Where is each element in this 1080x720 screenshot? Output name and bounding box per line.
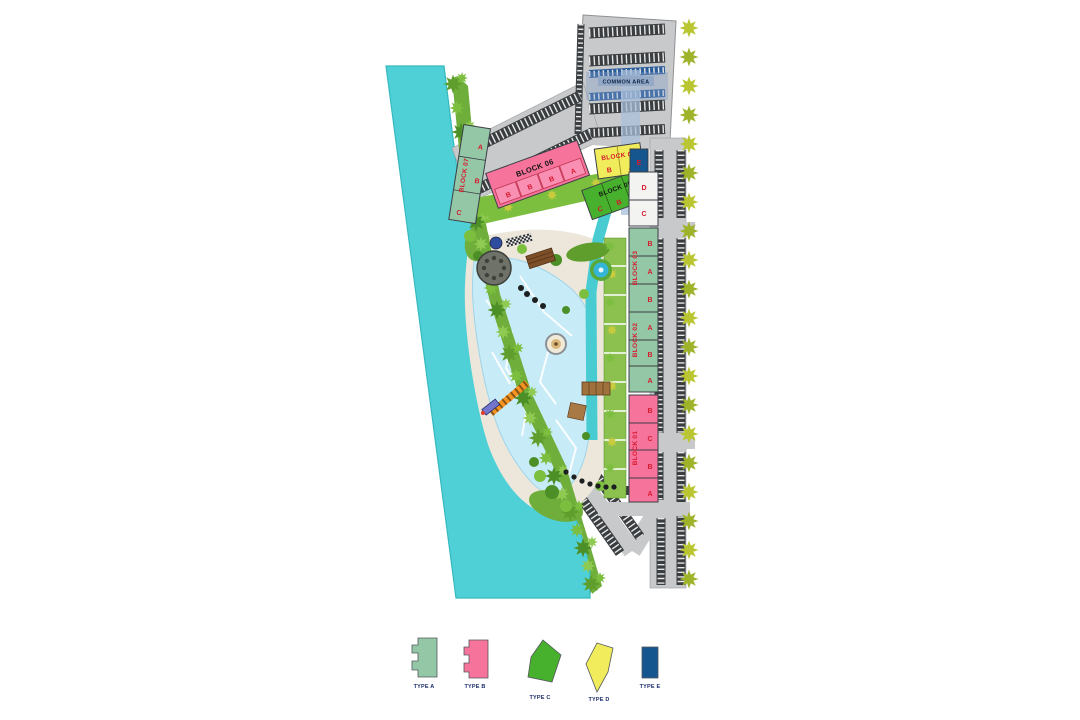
tree-icon	[607, 325, 618, 336]
block-02-label: BLOCK 02	[632, 323, 639, 358]
tree-icon	[547, 190, 558, 201]
legend-label-type-e: TYPE E	[640, 684, 661, 690]
unit-label: B	[474, 178, 480, 186]
lounger-icon	[571, 474, 576, 479]
tree-icon	[680, 106, 699, 125]
unit-label: B	[647, 297, 652, 304]
rock-dot	[482, 266, 486, 270]
round-pool-center	[599, 268, 604, 273]
tree-icon	[680, 396, 699, 415]
kids-pool-icon	[490, 237, 502, 249]
stepping-stone-icon	[524, 291, 530, 297]
common-area-label: COMMON AREA	[603, 80, 650, 86]
tree-icon	[541, 426, 553, 438]
tree-icon	[573, 500, 585, 512]
unit-label: B	[647, 352, 652, 359]
unit-label: A	[647, 378, 652, 385]
unit-label: A	[647, 325, 652, 332]
lounger-icon	[563, 469, 568, 474]
tree-icon	[680, 48, 699, 67]
lounger-icon	[579, 478, 584, 483]
block-type-e: E	[630, 149, 648, 173]
tree-icon	[680, 193, 699, 212]
bush-icon	[582, 432, 590, 440]
tree-icon	[569, 184, 580, 195]
legend-label-type-b: TYPE B	[464, 684, 485, 690]
master-plan-map: COMMON AREA	[0, 0, 1080, 720]
tree-icon	[680, 19, 699, 38]
bush-icon	[464, 230, 476, 242]
tree-icon	[605, 463, 616, 474]
unit-label: D	[641, 185, 646, 192]
fountain-center	[554, 342, 558, 346]
buoy-icon	[481, 411, 485, 415]
unit-label: B	[647, 408, 652, 415]
tree-icon	[680, 280, 699, 299]
tree-icon	[456, 72, 468, 84]
unit-label: E	[637, 160, 642, 167]
tree-icon	[450, 101, 465, 116]
unit-label: A	[477, 144, 483, 152]
tree-icon	[512, 342, 524, 354]
canal-bridge-icon	[582, 382, 610, 395]
rock-dot	[485, 259, 489, 263]
tree-icon	[500, 298, 512, 310]
parking-stall-band	[578, 24, 581, 134]
bush-icon	[545, 485, 559, 499]
lounger-icon	[595, 483, 600, 488]
tree-icon	[680, 541, 699, 560]
tree-icon	[474, 237, 489, 252]
tree-icon	[680, 570, 699, 589]
tree-icon	[523, 411, 538, 426]
tree-icon	[605, 297, 616, 308]
cross-street	[598, 502, 690, 516]
bush-icon	[579, 289, 589, 299]
rock-dot	[485, 273, 489, 277]
tree-icon	[680, 454, 699, 473]
bush-icon	[529, 457, 539, 467]
tree-icon	[605, 353, 616, 364]
tree-icon	[570, 523, 585, 538]
lounger-icon	[611, 484, 616, 489]
unit-label: C	[647, 436, 652, 443]
block-02: BLOCK 02 A B A	[629, 312, 658, 392]
bush-icon	[517, 244, 527, 254]
tree-icon	[680, 338, 699, 357]
tree-icon	[509, 369, 524, 384]
tree-icon	[680, 309, 699, 328]
tree-icon	[680, 251, 699, 270]
tree-icon	[680, 367, 699, 386]
unit-label: B	[606, 167, 612, 175]
tree-icon	[605, 241, 616, 252]
block-03-label: BLOCK 03	[632, 251, 639, 286]
unit-label: C	[456, 210, 462, 218]
rock-dot	[502, 266, 506, 270]
tree-icon	[605, 409, 616, 420]
lounger-icon	[603, 484, 608, 489]
legend-label-type-d: TYPE D	[588, 697, 609, 703]
tree-icon	[680, 425, 699, 444]
tree-icon	[680, 222, 699, 241]
stepping-stone-icon	[518, 285, 524, 291]
tree-icon	[607, 437, 618, 448]
block-03: BLOCK 03 B A B	[629, 228, 658, 312]
site-plan-canvas: COMMON AREA	[0, 0, 1080, 720]
rock-dot	[492, 256, 496, 260]
stepping-stone-icon	[532, 297, 538, 303]
block-01: BLOCK 01 B C B A	[629, 395, 658, 502]
tree-icon	[586, 536, 598, 548]
unit-label: B	[647, 241, 652, 248]
tree-icon	[581, 559, 596, 574]
unit-label: A	[647, 491, 652, 498]
east-block-column: D C BLOCK 03 B A B BLOCK 02 A B A BLOCK …	[629, 172, 658, 502]
legend-label-type-c: TYPE C	[529, 695, 550, 701]
block-01-label: BLOCK 01	[632, 431, 639, 466]
legend-label-type-a: TYPE A	[414, 684, 435, 690]
unit-label: C	[641, 211, 646, 218]
tree-icon	[680, 483, 699, 502]
bush-icon	[562, 306, 570, 314]
tree-icon	[680, 512, 699, 531]
lounger-icon	[587, 481, 592, 486]
tree-icon	[539, 451, 554, 466]
tree-icon	[680, 135, 699, 154]
unit-label: B	[647, 464, 652, 471]
bush-icon	[560, 500, 572, 512]
rock-dot	[499, 259, 503, 263]
tree-icon	[496, 325, 511, 340]
rock-dot	[499, 273, 503, 277]
tree-icon	[481, 208, 492, 219]
stepping-stone-icon	[540, 303, 546, 309]
legend-item-type-e: TYPE E	[640, 647, 661, 690]
bush-icon	[534, 470, 546, 482]
unit-label: A	[647, 269, 652, 276]
tree-icon	[526, 386, 538, 398]
deck-mat-icon	[568, 402, 587, 420]
tree-icon	[594, 572, 606, 584]
rock-dot	[492, 276, 496, 280]
tree-icon	[680, 164, 699, 183]
legend-swatch-type-e	[642, 647, 658, 678]
tree-icon	[680, 77, 699, 96]
